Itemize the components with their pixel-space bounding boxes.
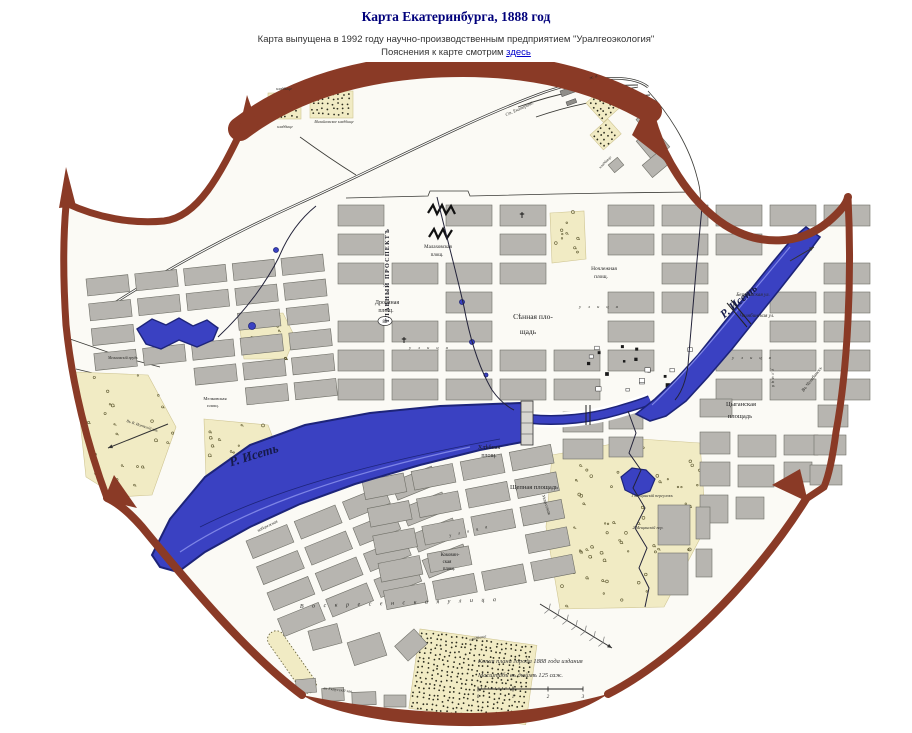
- map-label: Челябинская ул.: [740, 312, 775, 319]
- map-label: Хлѣбная: [478, 444, 501, 451]
- map-label: площ.: [481, 453, 497, 459]
- page-header: Карта Екатеринбурга, 1888 год Карта выпу…: [0, 0, 912, 60]
- page-subtitle: Карта выпущена в 1992 году научно-произв…: [0, 34, 912, 60]
- map-label: Копия плана города 1888 года издания: [477, 658, 583, 665]
- map-label: площ.: [207, 403, 219, 408]
- map-label: Мельковскій прудъ: [107, 355, 138, 360]
- map-container: 012382Р. ИсетьР. ИсетьГЛАВНЫЙ ПРОСПЕКТЪС…: [0, 62, 912, 728]
- svg-text:1: 1: [512, 695, 515, 700]
- map-label: кладбище: [276, 87, 292, 91]
- map-label: Цыганская: [726, 401, 756, 408]
- map-label: у л и ц а: [731, 355, 774, 360]
- map-label: площ.: [431, 253, 444, 258]
- map-label: Ночлежная: [591, 266, 617, 272]
- map-label: площ.: [443, 567, 455, 572]
- map-label: Михайловское кладбище: [313, 119, 354, 124]
- map-label: Коковин-: [441, 553, 460, 558]
- map-label: Дровяная: [375, 300, 399, 306]
- map-label: Щепная площадь: [510, 484, 558, 491]
- subtitle-line: Карта выпущена в 1992 году научно-произв…: [258, 34, 655, 45]
- note-text: Пояснения к карте смотрим: [381, 47, 506, 58]
- map-label: площ.: [378, 308, 394, 314]
- map-label: у л и ц а: [578, 304, 621, 309]
- map-label: щадь: [520, 327, 537, 336]
- map-label: Масштабъ въ дюймѣ 125 саж.: [477, 672, 563, 679]
- map-label: Березовская ул.: [735, 292, 770, 298]
- map-label: улица: [771, 367, 777, 389]
- map-label: площ.: [594, 274, 608, 280]
- map-label: ская: [443, 560, 453, 565]
- map-label: у л и ц а: [408, 345, 451, 350]
- map-label: 2 Мещанскій пер.: [632, 525, 663, 530]
- map-graphic: 012382Р. ИсетьР. ИсетьГЛАВНЫЙ ПРОСПЕКТЪС…: [0, 62, 912, 728]
- map-label: Сѣнная пло-: [513, 312, 553, 321]
- map-label: Малаховская: [424, 245, 452, 250]
- map-label: кладбище: [277, 125, 293, 129]
- explanation-link[interactable]: здесь: [506, 47, 531, 58]
- page-title: Карта Екатеринбурга, 1888 год: [0, 9, 912, 25]
- map-label: площадь: [728, 413, 752, 420]
- map-label: 1 Мещанскій переулокъ: [631, 493, 674, 498]
- map-label: Мелковская: [203, 396, 227, 401]
